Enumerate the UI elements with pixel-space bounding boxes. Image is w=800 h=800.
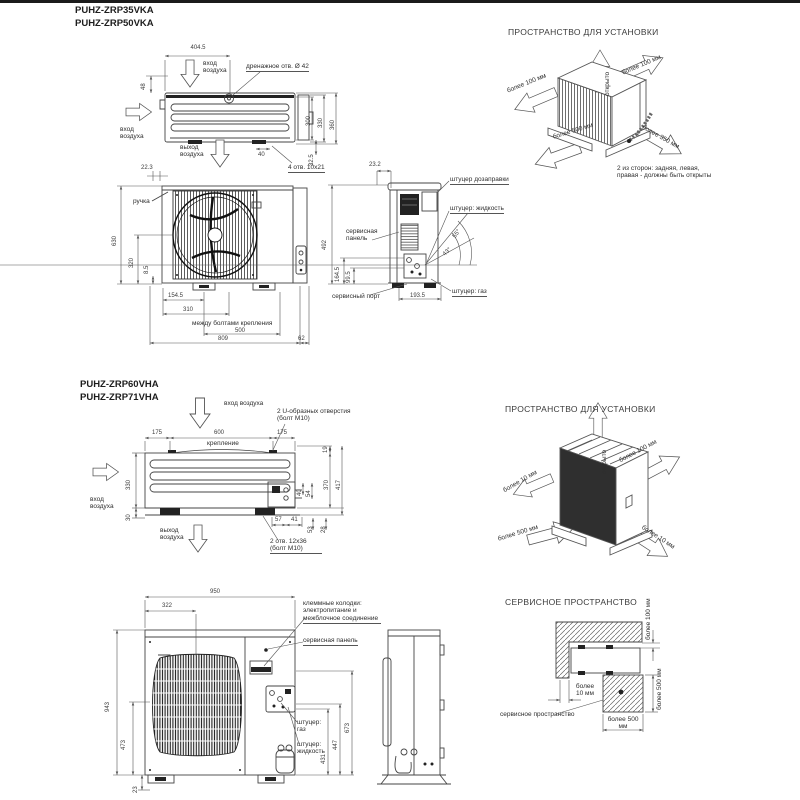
s2-fv-liquid-label: штуцер: жидкость: [297, 741, 337, 756]
s1-fv-dim-320: 320: [129, 258, 136, 268]
s2-tv-mount-label: крепление: [207, 440, 239, 447]
s2-tv-dim-54: 54: [306, 490, 313, 497]
s2-tv-dim-370: 370: [324, 480, 331, 490]
s2-tv-dim-40: 40: [297, 489, 304, 496]
s2-tv-dim-19: 19: [323, 446, 330, 453]
s2-tv-dim-175-right: 175: [277, 430, 287, 437]
s1-tv-dim-330: 330: [318, 118, 325, 128]
s1-sv-dim-164-5: 164.5: [335, 267, 342, 282]
s2-tv-dim-417: 417: [336, 480, 343, 490]
s1-front-view-drawing: [152, 186, 307, 290]
s1-sv-dim-492: 492: [322, 240, 329, 250]
s2-tv-holes-label: 2 отв. 12х36 (болт М10): [270, 538, 322, 554]
s1-tv-drain-hole-label: дренажное отв. Ø 42: [246, 63, 309, 72]
s2-side-view-drawing: [377, 630, 451, 784]
s1-model-1: PUHZ-ZRP35VKA: [75, 6, 154, 17]
s1-fv-dim-630: 630: [112, 236, 119, 246]
s2-install-open-label: открыто: [601, 450, 608, 474]
s1-tv-dim-22-3: 22.3: [141, 165, 153, 172]
s1-top-view-air-arrows: [126, 60, 229, 167]
s1-tv-air-in-left-label: вход воздуха: [120, 126, 150, 141]
s2-tv-air-out-label: выход воздуха: [160, 527, 192, 542]
s2-tv-air-in-top-label: вход воздуха: [224, 400, 263, 407]
s2-top-view-drawing: [145, 450, 302, 516]
s2-fv-dim-673: 673: [345, 723, 352, 733]
s2-front-view-drawing: [145, 630, 295, 783]
svc-area-label: сервисное пространство: [500, 711, 574, 718]
s2-model-1: PUHZ-ZRP60VHA: [80, 380, 159, 391]
s1-sv-liquid-label: штуцер: жидкость: [450, 205, 504, 214]
s1-sv-dim-99-5: 99.5: [346, 271, 353, 283]
s1-fv-handle-label: ручка: [133, 198, 150, 205]
s2-model-2: PUHZ-ZRP71VHA: [80, 393, 159, 404]
s1-fv-dim-809: 809: [218, 336, 228, 343]
s2-fv-dim-322: 322: [162, 603, 172, 610]
s2-fv-dim-23: 23: [133, 786, 140, 793]
svc-m500-right-label: более 500 мм: [656, 668, 663, 710]
s2-fv-dim-943: 943: [105, 702, 112, 712]
s1-tv-dim-300: 300: [306, 116, 313, 126]
s1-top-view-drawing: [160, 93, 313, 144]
s1-sv-dim-23-2: 23.2: [369, 162, 381, 169]
s2-tv-dim-600: 600: [214, 430, 224, 437]
s1-sv-refill-label: штуцер дозаправки: [450, 176, 509, 185]
s1-tv-dim-48: 48: [141, 83, 148, 90]
s1-tv-air-out-label: выход воздуха: [180, 144, 212, 159]
s2-top-view-air-arrows: [93, 398, 210, 552]
s1-tv-dim-360: 360: [330, 120, 337, 130]
s2-tv-dim-175-left: 175: [152, 430, 162, 437]
s1-fv-bolts-label: между болтами крепления: [192, 320, 272, 327]
s2-tv-u-holes-label: 2 U-образных отверстия (болт М10): [277, 408, 363, 423]
s1-install-iso: [511, 48, 687, 174]
s1-tv-air-in-top-label: вход воздуха: [203, 60, 233, 75]
manual-page: PUHZ-ZRP35VKA PUHZ-ZRP50VKA 404.5 вход в…: [0, 0, 800, 800]
s2-tv-dim-57: 57: [275, 517, 282, 524]
s1-install-note: 2 из сторон: задняя, левая, правая - дол…: [617, 165, 717, 180]
s1-fv-dim-500: 500: [235, 328, 245, 335]
s2-fv-dim-950: 950: [210, 589, 220, 596]
s1-fv-dim-310: 310: [183, 307, 193, 314]
s2-fv-dim-473: 473: [121, 740, 128, 750]
s1-sv-panel-label: сервисная панель: [346, 228, 388, 243]
s2-tv-dim-28: 28: [321, 526, 328, 533]
s1-fv-dim-8-5: 8.5: [144, 266, 151, 274]
s1-install-title: ПРОСТРАНСТВО ДЛЯ УСТАНОВКИ: [508, 28, 659, 38]
s1-tv-dim-404-5: 404.5: [178, 45, 218, 52]
s1-sv-gas-label: штуцер: газ: [452, 288, 487, 297]
s2-fv-gas-label: штуцер: газ: [297, 719, 331, 734]
s2-tv-dim-53: 53: [308, 526, 315, 533]
s2-install-title: ПРОСТРАНСТВО ДЛЯ УСТАНОВКИ: [505, 405, 656, 415]
s2-fv-panel-label: сервисная панель: [303, 637, 358, 646]
s2-tv-dim-41: 41: [291, 517, 298, 524]
s2-tv-dim-30: 30: [126, 514, 133, 521]
s1-fv-dim-154-5: 154.5: [168, 293, 183, 300]
svc-title: СЕРВИСНОЕ ПРОСТРАНСТВО: [505, 598, 637, 608]
s1-model-2: PUHZ-ZRP50VKA: [75, 19, 154, 30]
s1-sv-service-port-label: сервисный порт: [332, 293, 380, 300]
svc-m100-label: более 100 мм: [645, 598, 652, 640]
s2-fv-terminal-label: клеммные колодки: электропитание и межбл…: [303, 600, 381, 624]
s1-tv-dim-40: 40: [258, 152, 265, 159]
s2-tv-air-in-left-label: вход воздуха: [90, 496, 122, 511]
svc-m10-label: более 10 мм: [572, 683, 598, 698]
svc-m500-bottom-label: более 500 мм: [606, 716, 640, 731]
s2-fv-dim-431: 431: [321, 754, 328, 764]
s2-fv-dim-447: 447: [333, 740, 340, 750]
s2-tv-dim-330: 330: [126, 480, 133, 490]
s1-side-view-drawing: [388, 183, 441, 288]
s1-fv-dim-62: 62: [298, 336, 305, 343]
s1-tv-holes-label: 4 отв. 10х21: [288, 164, 325, 173]
s1-sv-dim-193-5: 193.5: [410, 293, 425, 300]
s1-install-open-label: открыто: [604, 72, 611, 96]
